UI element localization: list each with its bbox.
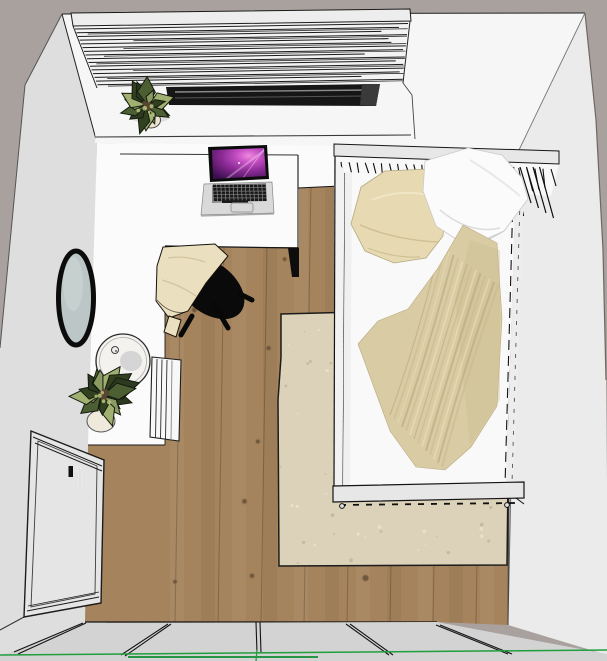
radiator[interactable] bbox=[150, 357, 181, 441]
wall-mirror[interactable] bbox=[59, 251, 94, 345]
window-opening bbox=[166, 84, 380, 106]
bottom-wall-band bbox=[0, 622, 607, 661]
table-vase bbox=[112, 347, 119, 354]
room-planner-viewport[interactable] bbox=[0, 0, 607, 661]
door[interactable] bbox=[24, 431, 104, 617]
scene-canvas[interactable] bbox=[0, 0, 607, 661]
window-blinds[interactable] bbox=[71, 9, 411, 88]
table-bowl bbox=[120, 351, 142, 371]
